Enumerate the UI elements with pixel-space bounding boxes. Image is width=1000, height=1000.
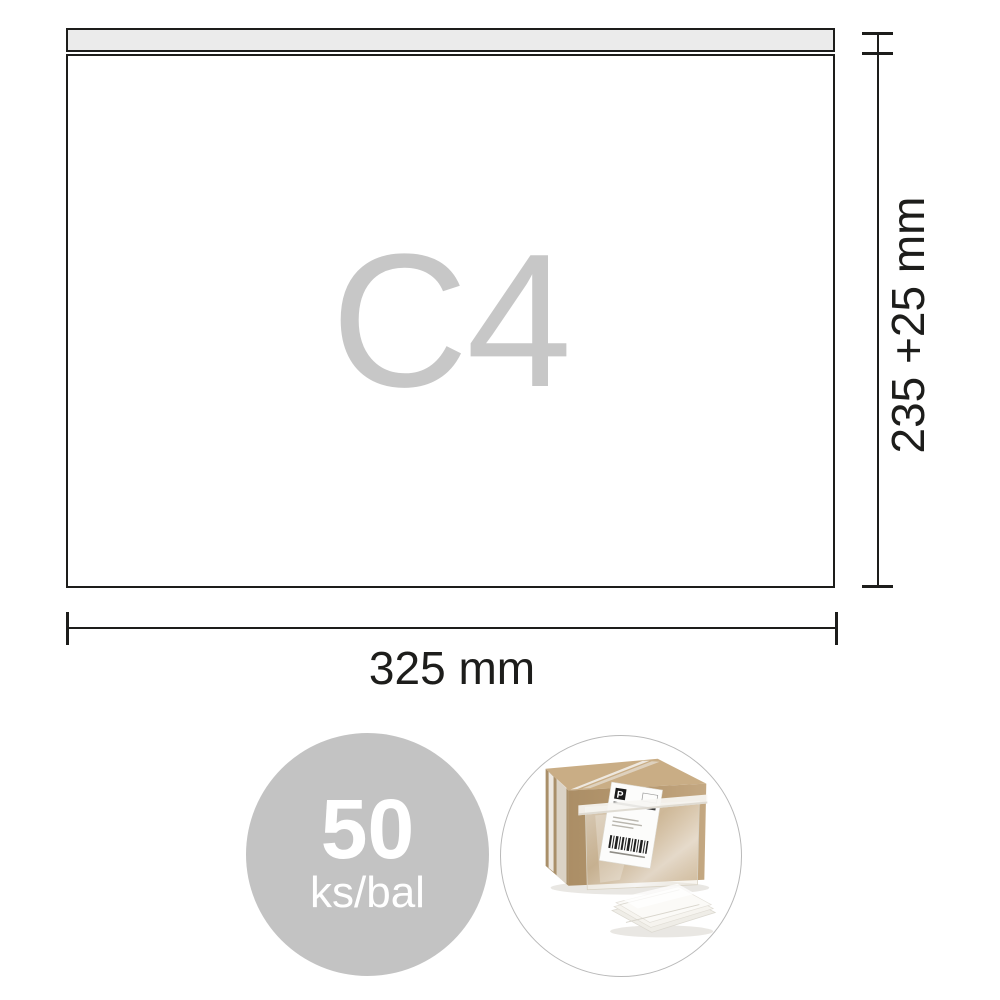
product-diagram-page: C4 235 +25 mm 325 mm 50 ks/bal — [0, 0, 1000, 1000]
height-dimension-tick-flap — [862, 52, 893, 55]
quantity-number: 50 — [321, 791, 414, 868]
width-dimension-label: 325 mm — [369, 641, 535, 695]
height-dimension-line — [877, 33, 879, 587]
width-dimension-line — [67, 627, 837, 629]
width-dimension-tick-right — [835, 612, 838, 645]
width-dimension-tick-left — [66, 612, 69, 645]
height-dimension-tick-bottom — [862, 585, 893, 588]
box-photo-illustration: P — [501, 736, 741, 976]
height-dimension-label: 235 +25 mm — [881, 197, 935, 454]
tape-stripe-side-1 — [549, 772, 554, 872]
envelope-body: C4 — [66, 54, 835, 588]
quantity-badge: 50 ks/bal — [246, 733, 489, 976]
tape-stripe-side-2 — [557, 779, 567, 884]
quantity-unit: ks/bal — [310, 868, 425, 919]
height-dimension-tick-top — [862, 32, 893, 35]
envelope-size-label: C4 — [331, 226, 570, 416]
product-photo: P — [500, 735, 742, 977]
envelope-flap — [66, 28, 835, 52]
